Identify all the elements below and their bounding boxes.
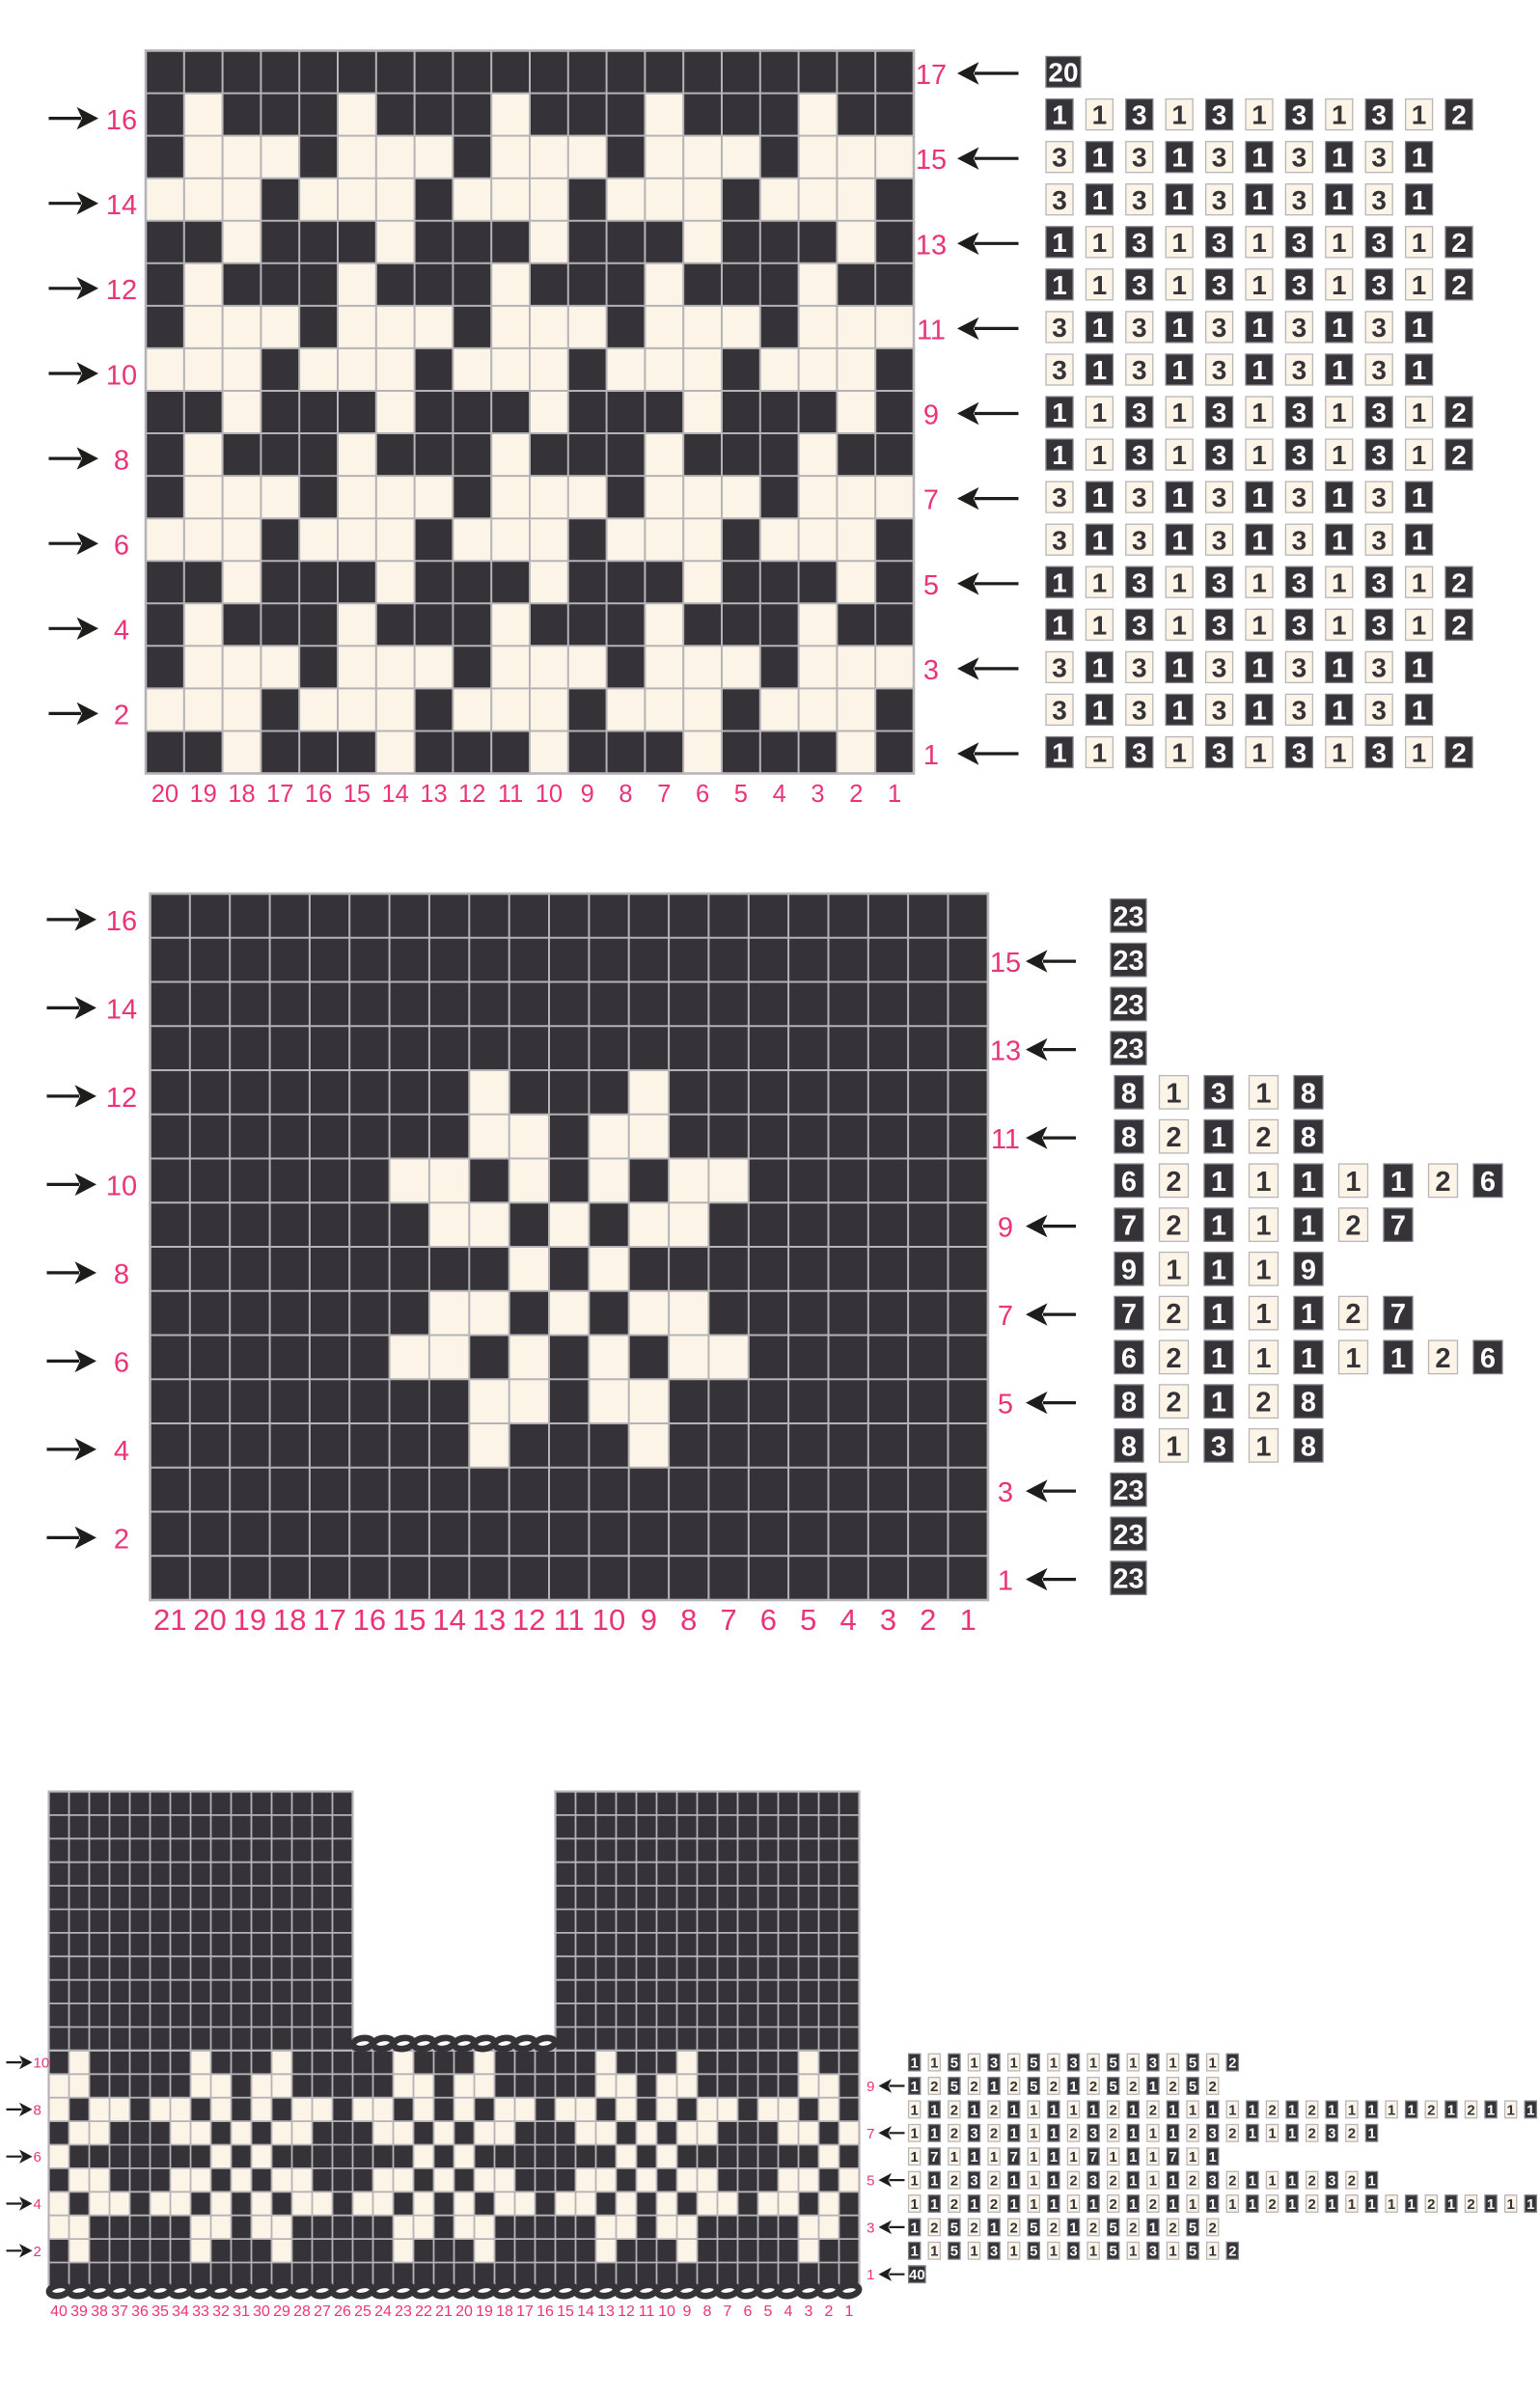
svg-text:1: 1	[1288, 2102, 1296, 2118]
svg-text:1: 1	[990, 2149, 998, 2166]
svg-text:3: 3	[1292, 525, 1307, 555]
svg-text:10: 10	[536, 781, 563, 808]
svg-text:1: 1	[1412, 567, 1427, 597]
svg-text:40: 40	[909, 2267, 925, 2283]
svg-text:16: 16	[106, 906, 137, 937]
svg-text:3: 3	[1209, 2173, 1217, 2190]
svg-text:1: 1	[1301, 1211, 1316, 1242]
svg-text:1: 1	[1052, 610, 1067, 640]
svg-text:1: 1	[1412, 313, 1427, 343]
svg-text:3: 3	[1212, 525, 1227, 555]
svg-text:1: 1	[960, 1603, 976, 1637]
svg-text:2: 2	[1166, 1388, 1181, 1419]
svg-text:1: 1	[1171, 398, 1187, 428]
svg-text:1: 1	[1251, 100, 1267, 130]
svg-text:1: 1	[1388, 2102, 1395, 2118]
svg-text:3: 3	[1052, 696, 1067, 726]
svg-text:13: 13	[916, 230, 947, 261]
svg-text:21: 21	[153, 1603, 186, 1637]
svg-text:1: 1	[1211, 1343, 1226, 1374]
svg-text:5: 5	[1030, 2055, 1037, 2072]
svg-text:1: 1	[1332, 653, 1347, 683]
svg-text:7: 7	[923, 485, 939, 516]
svg-text:1: 1	[1092, 100, 1108, 130]
svg-text:1: 1	[911, 2126, 919, 2142]
svg-text:1: 1	[1390, 1167, 1406, 1198]
svg-text:2: 2	[1467, 2196, 1474, 2213]
svg-text:3: 3	[1212, 143, 1227, 173]
svg-text:1: 1	[1092, 270, 1108, 300]
svg-text:1: 1	[1209, 2196, 1217, 2213]
svg-text:1: 1	[1189, 2196, 1196, 2213]
svg-text:3: 3	[1212, 440, 1227, 470]
svg-text:2: 2	[1110, 2126, 1117, 2142]
svg-text:1: 1	[866, 2267, 874, 2283]
svg-text:9: 9	[1301, 1255, 1316, 1285]
svg-text:2: 2	[1451, 228, 1467, 258]
svg-text:1: 1	[1052, 567, 1067, 597]
svg-text:1: 1	[1050, 2102, 1058, 2118]
svg-text:7: 7	[1390, 1211, 1406, 1242]
svg-text:2: 2	[1166, 1299, 1181, 1330]
svg-text:8: 8	[1121, 1122, 1137, 1153]
svg-text:1: 1	[1507, 2102, 1515, 2118]
svg-text:3: 3	[1292, 398, 1307, 428]
svg-text:1: 1	[845, 2303, 854, 2320]
svg-text:12: 12	[106, 275, 137, 306]
svg-text:2: 2	[1129, 2079, 1137, 2095]
svg-text:1: 1	[1030, 2102, 1037, 2118]
svg-text:3: 3	[1292, 696, 1307, 726]
svg-text:5: 5	[734, 781, 748, 808]
svg-text:1: 1	[1251, 483, 1267, 512]
svg-text:1: 1	[1487, 2102, 1495, 2118]
svg-text:1: 1	[1149, 2126, 1157, 2142]
svg-text:2: 2	[1110, 2102, 1117, 2118]
svg-text:1: 1	[1255, 1255, 1271, 1285]
svg-text:23: 23	[1113, 1034, 1143, 1065]
svg-text:1: 1	[1209, 2102, 1217, 2118]
svg-text:3: 3	[1212, 270, 1227, 300]
svg-text:2: 2	[1089, 2079, 1097, 2095]
svg-text:18: 18	[273, 1603, 306, 1637]
svg-text:26: 26	[334, 2303, 351, 2320]
svg-text:3: 3	[1132, 143, 1147, 173]
svg-text:23: 23	[1113, 1476, 1143, 1506]
svg-text:5: 5	[950, 2244, 958, 2260]
svg-text:4: 4	[773, 781, 786, 808]
svg-text:23: 23	[1113, 946, 1143, 977]
svg-text:2: 2	[849, 781, 863, 808]
svg-text:2: 2	[1435, 1343, 1450, 1374]
svg-text:2: 2	[825, 2303, 834, 2320]
svg-text:1: 1	[1412, 100, 1427, 130]
svg-text:1: 1	[1171, 610, 1187, 640]
svg-text:6: 6	[114, 531, 129, 562]
svg-text:1: 1	[1092, 738, 1108, 768]
svg-text:7: 7	[1121, 1211, 1137, 1242]
svg-text:3: 3	[1211, 1431, 1226, 1462]
svg-text:1: 1	[1211, 1167, 1226, 1198]
svg-text:3: 3	[1328, 2173, 1335, 2190]
svg-text:1: 1	[1412, 398, 1427, 428]
svg-text:6: 6	[1121, 1343, 1137, 1374]
svg-text:1: 1	[930, 2173, 938, 2190]
svg-text:16: 16	[106, 105, 137, 136]
svg-text:19: 19	[190, 781, 217, 808]
svg-text:1: 1	[1050, 2173, 1058, 2190]
svg-text:3: 3	[1292, 567, 1307, 597]
svg-text:2: 2	[1348, 2173, 1356, 2190]
svg-text:1: 1	[1149, 2173, 1157, 2190]
svg-text:3: 3	[1212, 355, 1227, 385]
svg-text:1: 1	[1171, 313, 1187, 343]
svg-text:6: 6	[114, 1348, 129, 1379]
svg-text:1: 1	[1332, 738, 1347, 768]
svg-text:7: 7	[724, 2303, 732, 2320]
svg-text:3: 3	[1052, 185, 1067, 215]
svg-text:1: 1	[1209, 2055, 1217, 2072]
svg-text:7: 7	[866, 2126, 874, 2142]
svg-text:1: 1	[1050, 2244, 1058, 2260]
svg-text:11: 11	[991, 1124, 1020, 1155]
svg-text:1: 1	[930, 2126, 938, 2142]
svg-text:1: 1	[1408, 2102, 1416, 2118]
svg-text:1: 1	[1332, 398, 1347, 428]
svg-text:1: 1	[1255, 1211, 1271, 1242]
svg-text:1: 1	[1255, 1167, 1271, 1198]
svg-text:3: 3	[1292, 653, 1307, 683]
svg-text:16: 16	[305, 781, 332, 808]
svg-text:7: 7	[1121, 1299, 1137, 1330]
svg-text:5: 5	[1189, 2055, 1196, 2072]
svg-text:2: 2	[1308, 2173, 1316, 2190]
svg-text:1: 1	[1255, 1078, 1271, 1109]
svg-text:21: 21	[435, 2303, 453, 2320]
svg-text:2: 2	[1050, 2220, 1058, 2236]
svg-text:24: 24	[374, 2303, 392, 2320]
svg-text:3: 3	[923, 655, 939, 686]
svg-text:2: 2	[1451, 440, 1467, 470]
svg-text:27: 27	[314, 2303, 331, 2320]
svg-text:3: 3	[1371, 313, 1387, 343]
svg-text:2: 2	[1209, 2079, 1217, 2095]
svg-text:2: 2	[1228, 2173, 1236, 2190]
svg-text:2: 2	[1166, 1211, 1181, 1242]
svg-text:3: 3	[1132, 270, 1147, 300]
svg-text:5: 5	[998, 1390, 1013, 1421]
svg-text:1: 1	[1268, 2126, 1276, 2142]
svg-text:3: 3	[1132, 440, 1147, 470]
svg-text:3: 3	[1052, 355, 1067, 385]
svg-text:1: 1	[1092, 610, 1108, 640]
svg-text:23: 23	[1113, 990, 1143, 1021]
svg-text:1: 1	[1092, 483, 1108, 512]
svg-text:2: 2	[1308, 2196, 1316, 2213]
svg-text:3: 3	[1069, 2055, 1077, 2072]
svg-text:2: 2	[1255, 1388, 1271, 1419]
svg-text:9: 9	[998, 1213, 1013, 1244]
svg-text:3: 3	[1212, 228, 1227, 258]
svg-text:1: 1	[1171, 738, 1187, 768]
svg-text:1: 1	[1030, 2149, 1037, 2166]
svg-text:8: 8	[680, 1603, 697, 1637]
svg-text:1: 1	[1166, 1255, 1181, 1285]
svg-text:3: 3	[811, 781, 824, 808]
svg-text:1: 1	[1129, 2055, 1137, 2072]
svg-text:1: 1	[1249, 2102, 1256, 2118]
svg-text:3: 3	[970, 2126, 977, 2142]
svg-text:1: 1	[1171, 525, 1187, 555]
svg-text:2: 2	[930, 2079, 938, 2095]
svg-text:3: 3	[1371, 440, 1387, 470]
svg-text:1: 1	[1332, 185, 1347, 215]
svg-text:2: 2	[1345, 1299, 1361, 1330]
svg-text:1: 1	[1092, 228, 1108, 258]
svg-text:1: 1	[1129, 2196, 1137, 2213]
svg-text:1: 1	[990, 2079, 998, 2095]
svg-text:2: 2	[1451, 398, 1467, 428]
svg-text:3: 3	[1052, 143, 1067, 173]
svg-text:3: 3	[866, 2220, 874, 2236]
svg-text:3: 3	[1132, 483, 1147, 512]
svg-text:5: 5	[1110, 2055, 1117, 2072]
svg-text:1: 1	[1149, 2079, 1157, 2095]
svg-text:1: 1	[1169, 2102, 1176, 2118]
svg-text:1: 1	[1332, 483, 1347, 512]
svg-text:8: 8	[1121, 1388, 1137, 1419]
svg-text:38: 38	[91, 2303, 108, 2320]
svg-text:7: 7	[998, 1301, 1013, 1332]
svg-text:1: 1	[1412, 355, 1427, 385]
svg-text:1: 1	[1487, 2196, 1495, 2213]
svg-text:39: 39	[70, 2303, 88, 2320]
svg-text:1: 1	[1288, 2126, 1296, 2142]
svg-text:14: 14	[577, 2303, 594, 2320]
svg-text:1: 1	[1171, 440, 1187, 470]
svg-text:12: 12	[106, 1083, 137, 1114]
svg-text:1: 1	[1092, 185, 1108, 215]
svg-text:1: 1	[1328, 2196, 1335, 2213]
svg-text:3: 3	[1052, 653, 1067, 683]
svg-text:3: 3	[1212, 100, 1227, 130]
svg-text:1: 1	[1069, 2079, 1077, 2095]
svg-text:2: 2	[990, 2126, 998, 2142]
svg-text:1: 1	[1211, 1211, 1226, 1242]
svg-text:1: 1	[1209, 2149, 1217, 2166]
svg-text:1: 1	[1092, 525, 1108, 555]
svg-text:3: 3	[1292, 440, 1307, 470]
svg-text:2: 2	[1427, 2196, 1435, 2213]
svg-text:3: 3	[1149, 2055, 1157, 2072]
svg-text:1: 1	[1251, 143, 1267, 173]
svg-text:1: 1	[1211, 1388, 1226, 1419]
svg-text:20: 20	[455, 2303, 473, 2320]
svg-text:1: 1	[1412, 143, 1427, 173]
svg-text:23: 23	[395, 2303, 412, 2320]
svg-text:3: 3	[1212, 483, 1227, 512]
svg-text:9: 9	[866, 2079, 874, 2095]
svg-text:3: 3	[990, 2055, 998, 2072]
svg-text:1: 1	[1332, 228, 1347, 258]
svg-text:2: 2	[1268, 2196, 1276, 2213]
svg-text:30: 30	[253, 2303, 270, 2320]
svg-text:17: 17	[516, 2303, 534, 2320]
svg-text:1: 1	[1069, 2149, 1077, 2166]
svg-text:6: 6	[1480, 1167, 1496, 1198]
svg-text:10: 10	[34, 2055, 50, 2072]
svg-text:1: 1	[1169, 2196, 1176, 2213]
svg-text:1: 1	[1251, 738, 1267, 768]
svg-text:8: 8	[1301, 1122, 1316, 1153]
svg-text:1: 1	[1092, 398, 1108, 428]
svg-text:1: 1	[1228, 2196, 1236, 2213]
svg-text:1: 1	[1052, 100, 1067, 130]
svg-text:1: 1	[1412, 185, 1427, 215]
svg-text:1: 1	[1526, 2196, 1534, 2213]
svg-text:1: 1	[1412, 440, 1427, 470]
svg-text:1: 1	[1069, 2102, 1077, 2118]
svg-text:2: 2	[1169, 2079, 1176, 2095]
svg-text:3: 3	[1371, 653, 1387, 683]
svg-text:4: 4	[839, 1603, 856, 1637]
svg-text:3: 3	[1132, 525, 1147, 555]
svg-text:5: 5	[1030, 2244, 1037, 2260]
svg-text:32: 32	[212, 2303, 230, 2320]
svg-text:1: 1	[1171, 270, 1187, 300]
svg-text:1: 1	[1129, 2244, 1137, 2260]
svg-text:1: 1	[1209, 2244, 1217, 2260]
svg-text:3: 3	[1292, 483, 1307, 512]
svg-text:3: 3	[1371, 355, 1387, 385]
svg-text:1: 1	[1171, 355, 1187, 385]
svg-text:3: 3	[1371, 610, 1387, 640]
svg-text:2: 2	[1451, 610, 1467, 640]
svg-text:1: 1	[1332, 696, 1347, 726]
svg-text:10: 10	[592, 1603, 625, 1637]
svg-text:9: 9	[581, 781, 594, 808]
svg-text:1: 1	[1169, 2244, 1176, 2260]
svg-text:10: 10	[106, 1172, 137, 1202]
svg-text:2: 2	[1228, 2244, 1236, 2260]
svg-text:1: 1	[1052, 398, 1067, 428]
svg-text:1: 1	[1010, 2102, 1018, 2118]
svg-text:1: 1	[1050, 2055, 1058, 2072]
svg-text:7: 7	[930, 2149, 938, 2166]
svg-text:3: 3	[1371, 100, 1387, 130]
svg-text:1: 1	[1030, 2173, 1037, 2190]
svg-text:5: 5	[1189, 2244, 1196, 2260]
svg-text:3: 3	[1089, 2126, 1097, 2142]
svg-text:25: 25	[354, 2303, 371, 2320]
svg-text:2: 2	[1166, 1343, 1181, 1374]
svg-text:1: 1	[1332, 440, 1347, 470]
svg-text:13: 13	[990, 1036, 1021, 1067]
svg-text:8: 8	[1301, 1388, 1316, 1419]
svg-text:1: 1	[970, 2055, 977, 2072]
svg-text:1: 1	[1412, 270, 1427, 300]
svg-text:17: 17	[266, 781, 293, 808]
svg-text:3: 3	[1292, 228, 1307, 258]
svg-text:1: 1	[1166, 1431, 1181, 1462]
svg-text:3: 3	[1052, 525, 1067, 555]
svg-text:22: 22	[415, 2303, 432, 2320]
svg-text:1: 1	[1332, 567, 1347, 597]
svg-text:2: 2	[990, 2173, 998, 2190]
svg-text:1: 1	[1092, 696, 1108, 726]
svg-text:13: 13	[597, 2303, 615, 2320]
svg-text:9: 9	[923, 400, 939, 431]
svg-text:1: 1	[1367, 2102, 1375, 2118]
svg-text:1: 1	[1332, 355, 1347, 385]
svg-text:1: 1	[1171, 143, 1187, 173]
svg-text:6: 6	[696, 781, 709, 808]
svg-text:1: 1	[1010, 2196, 1018, 2213]
svg-text:1: 1	[970, 2149, 977, 2166]
svg-text:14: 14	[432, 1603, 465, 1637]
svg-text:2: 2	[1348, 2126, 1356, 2142]
svg-text:2: 2	[1228, 2055, 1236, 2072]
svg-text:1: 1	[1069, 2196, 1077, 2213]
svg-text:1: 1	[1089, 2102, 1097, 2118]
svg-text:5: 5	[1030, 2079, 1037, 2095]
svg-text:23: 23	[1113, 901, 1143, 932]
svg-text:1: 1	[1189, 2102, 1196, 2118]
svg-text:1: 1	[923, 740, 939, 771]
svg-text:3: 3	[1371, 398, 1387, 428]
svg-text:1: 1	[1171, 483, 1187, 512]
svg-text:7: 7	[1089, 2149, 1097, 2166]
svg-text:4: 4	[114, 616, 129, 647]
svg-text:1: 1	[1169, 2055, 1176, 2072]
svg-text:1: 1	[970, 2244, 977, 2260]
svg-text:3: 3	[1371, 143, 1387, 173]
svg-text:16: 16	[536, 2303, 554, 2320]
svg-text:8: 8	[619, 781, 632, 808]
svg-text:4: 4	[784, 2303, 793, 2320]
svg-text:1: 1	[1447, 2102, 1455, 2118]
svg-text:2: 2	[1427, 2102, 1435, 2118]
svg-text:1: 1	[1412, 696, 1427, 726]
svg-text:11: 11	[917, 315, 946, 345]
svg-text:5: 5	[866, 2173, 874, 2190]
svg-text:13: 13	[420, 781, 447, 808]
svg-text:1: 1	[1412, 228, 1427, 258]
svg-text:1: 1	[1390, 1343, 1406, 1374]
svg-text:3: 3	[1212, 610, 1227, 640]
svg-text:5: 5	[950, 2079, 958, 2095]
svg-text:4: 4	[34, 2196, 41, 2213]
svg-text:2: 2	[1228, 2126, 1236, 2142]
svg-text:1: 1	[1251, 525, 1267, 555]
svg-text:2: 2	[34, 2244, 41, 2260]
svg-text:3: 3	[1212, 185, 1227, 215]
svg-text:6: 6	[744, 2303, 753, 2320]
svg-text:10: 10	[658, 2303, 675, 2320]
svg-text:1: 1	[1251, 610, 1267, 640]
svg-text:5: 5	[1030, 2220, 1037, 2236]
svg-text:10: 10	[106, 360, 137, 391]
svg-text:1: 1	[1412, 525, 1427, 555]
svg-text:1: 1	[1388, 2196, 1395, 2213]
svg-text:3: 3	[1371, 525, 1387, 555]
svg-text:3: 3	[1292, 100, 1307, 130]
svg-text:1: 1	[1412, 483, 1427, 512]
svg-text:3: 3	[880, 1603, 896, 1637]
svg-text:1: 1	[1050, 2126, 1058, 2142]
svg-text:3: 3	[1371, 185, 1387, 215]
svg-text:3: 3	[1132, 355, 1147, 385]
